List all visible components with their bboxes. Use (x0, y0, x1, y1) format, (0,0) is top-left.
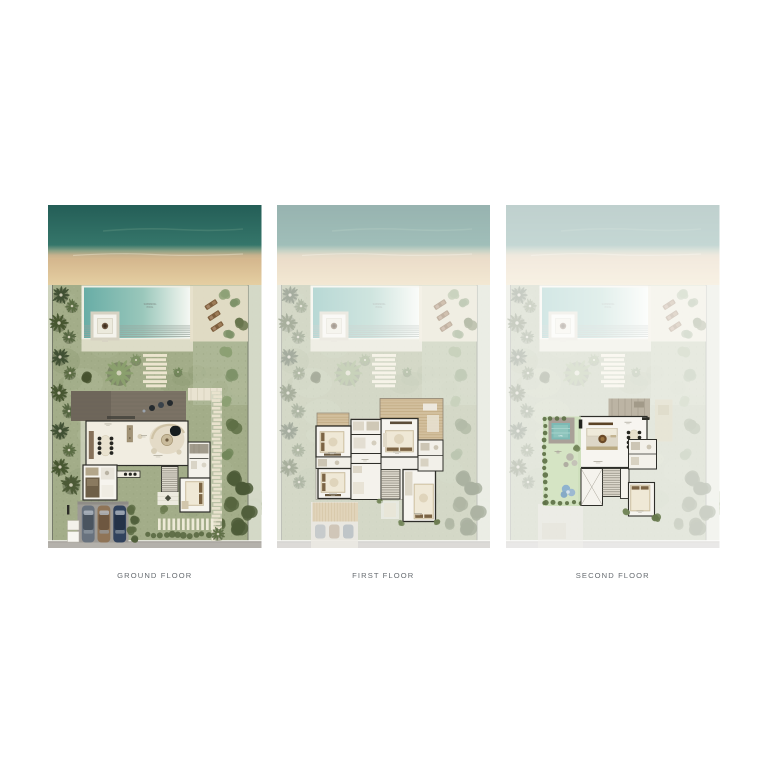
svg-text:POOL: POOL (147, 306, 154, 309)
svg-text:SPA: SPA (558, 435, 563, 438)
